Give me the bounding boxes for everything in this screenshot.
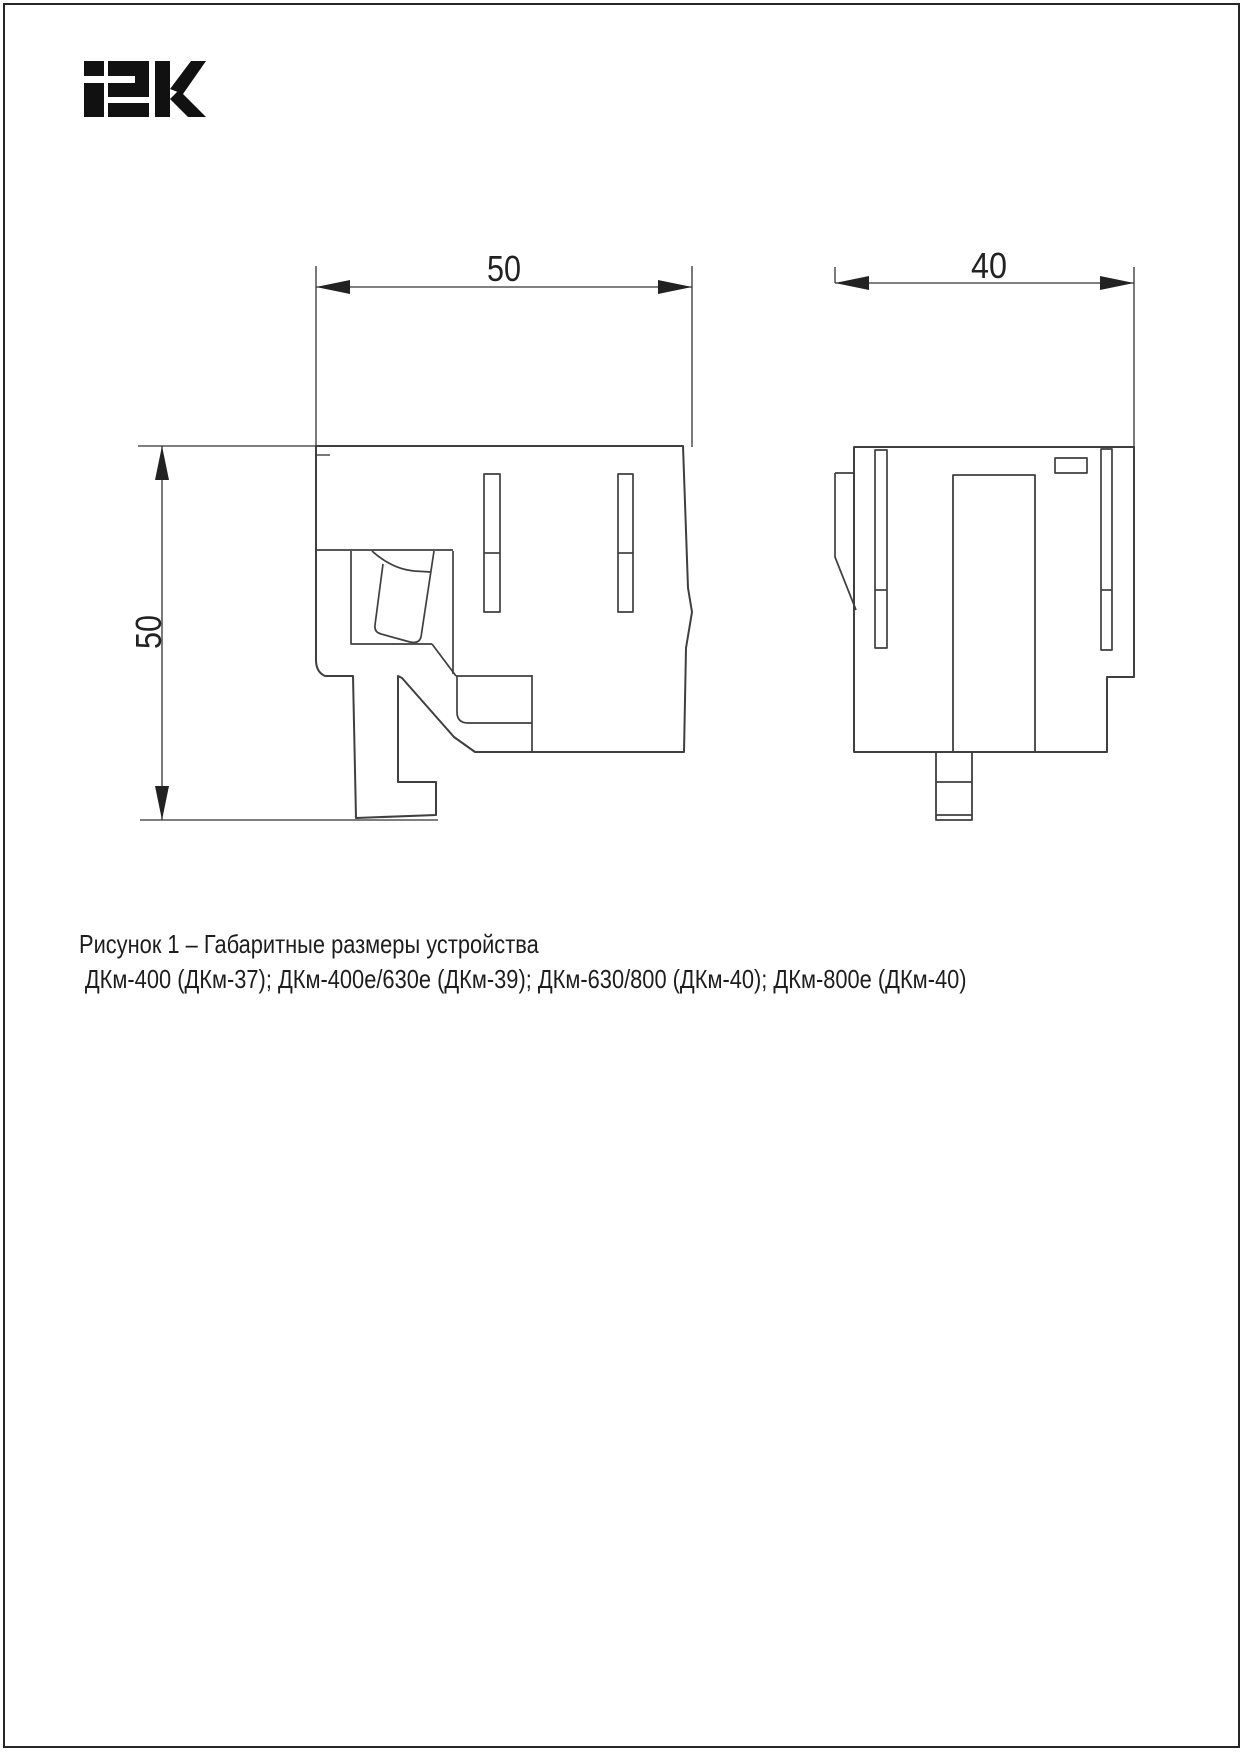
caption-line-2: ДКм-400 (ДКм-37); ДКм-400е/630е (ДКм-39)… [79,962,967,997]
slot-left [484,474,500,612]
lever-hood-curve [372,551,431,572]
caption-line-1: Рисунок 1 – Габаритные размеры устройств… [79,927,967,962]
document-page: 50 50 40 Рисунок 1 – Габаритные размеры … [0,0,1244,1752]
arrow-side-height-top [155,446,169,480]
side-height-label: 50 [128,615,169,649]
front-view-outline [854,447,1134,752]
front-width-label: 40 [971,245,1007,286]
bottom-shaft [936,752,972,820]
dimension-lines [138,266,1134,820]
dimension-arrows [155,276,1134,820]
figure-caption: Рисунок 1 – Габаритные размеры устройств… [79,927,967,997]
arrow-front-width-right [1100,276,1134,290]
notch-recess [456,675,532,752]
front-view-inner-panel [953,475,1035,752]
side-view-slots [484,474,633,612]
front-view-slots [875,449,1112,650]
side-view-outline [316,446,692,818]
arrow-side-width-left [316,280,350,294]
front-view [835,447,1134,820]
arrow-side-width-right [658,280,692,294]
side-width-label: 50 [487,248,521,289]
dimensional-drawing: 50 50 40 [0,0,1244,880]
arrow-front-width-left [835,276,869,290]
slot-right [618,474,633,612]
front-slot-right [1101,449,1112,650]
front-view-left-clip [835,473,856,610]
lever-body [375,551,434,642]
front-slot-left [875,450,887,648]
shaft-outline [936,752,972,820]
side-view [316,446,692,818]
indicator-window [1055,458,1087,473]
arrow-side-height-bottom [155,786,169,820]
